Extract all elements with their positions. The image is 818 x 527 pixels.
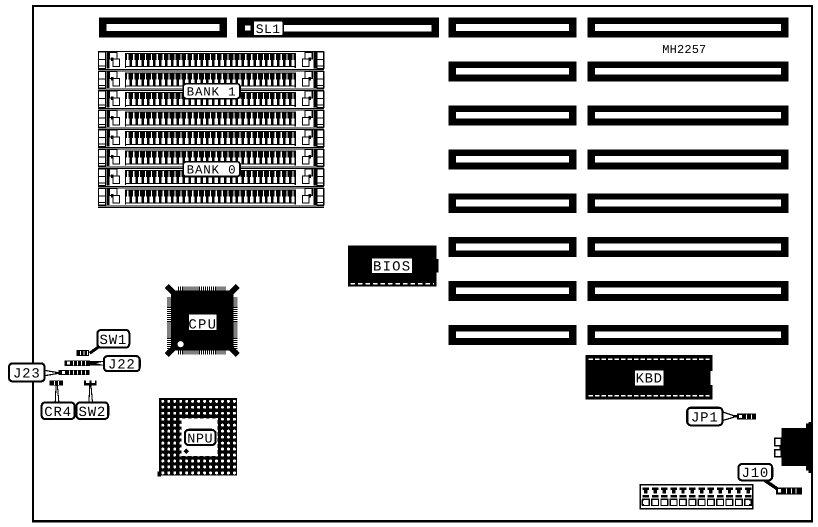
svg-text:J10: J10: [742, 466, 770, 482]
svg-text:BANK 0: BANK 0: [187, 164, 237, 178]
svg-text:NPU: NPU: [187, 432, 213, 447]
svg-text:SW1: SW1: [100, 333, 128, 349]
svg-text:J22: J22: [108, 358, 136, 374]
svg-text:JP1: JP1: [691, 411, 719, 427]
svg-text:BANK 1: BANK 1: [187, 86, 237, 100]
svg-text:CPU: CPU: [188, 317, 217, 333]
svg-text:CR4: CR4: [44, 405, 72, 421]
svg-text:SL1: SL1: [256, 22, 281, 37]
svg-text:BIOS: BIOS: [373, 260, 411, 276]
svg-text:J23: J23: [13, 366, 41, 382]
svg-text:MH2257: MH2257: [662, 43, 706, 57]
svg-text:SW2: SW2: [79, 405, 107, 421]
svg-text:KBD: KBD: [636, 372, 663, 388]
